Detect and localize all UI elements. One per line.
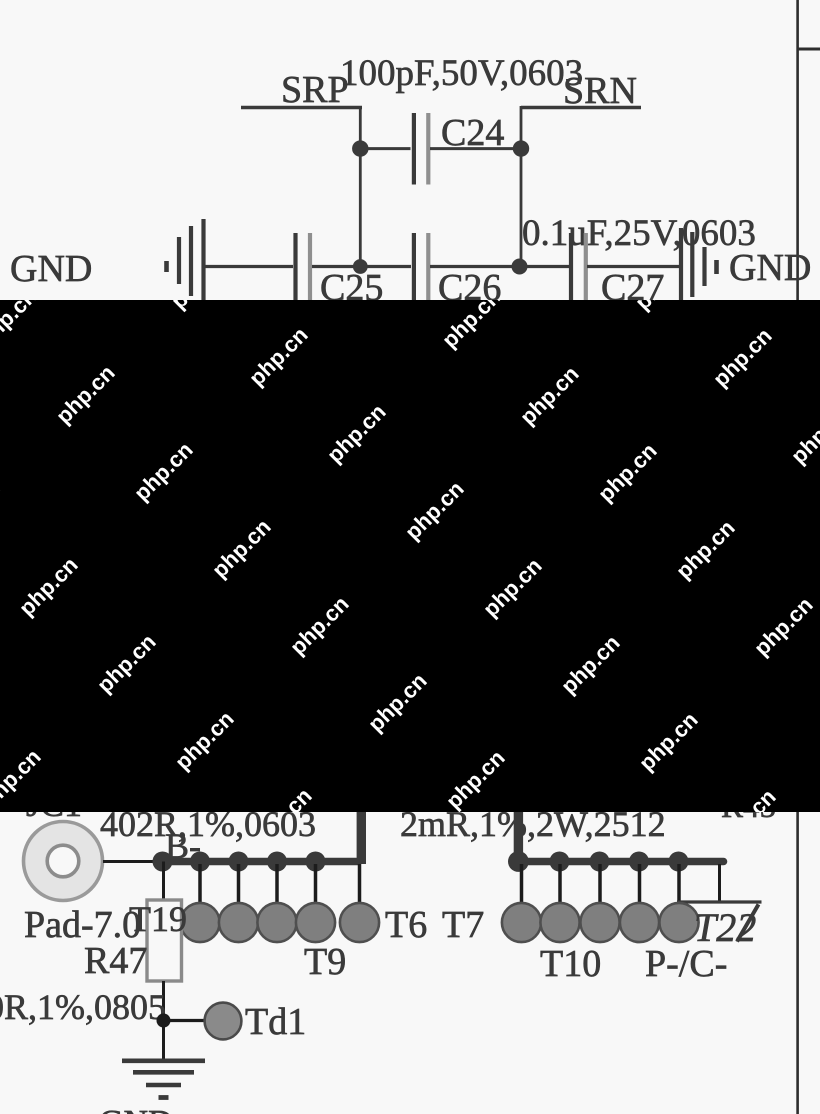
svg-text:T6: T6	[385, 904, 427, 946]
svg-text:0.1uF,25V,0603: 0.1uF,25V,0603	[522, 213, 756, 254]
svg-text:C24: C24	[441, 112, 504, 154]
svg-text:T10: T10	[540, 943, 601, 985]
svg-text:GND: GND	[10, 248, 92, 290]
svg-text:P-/C-: P-/C-	[645, 943, 727, 985]
svg-text:SRN: SRN	[563, 70, 637, 112]
svg-text:T9: T9	[304, 941, 346, 983]
svg-text:0R,1%,0805: 0R,1%,0805	[0, 987, 166, 1027]
svg-text:GND: GND	[729, 247, 811, 289]
svg-text:T7: T7	[442, 904, 484, 946]
svg-text:GND: GND	[99, 1104, 173, 1114]
svg-text:SRP: SRP	[281, 69, 349, 111]
svg-text:R47: R47	[84, 940, 147, 982]
svg-text:Td1: Td1	[245, 1001, 306, 1043]
svg-text:100pF,50V,0603: 100pF,50V,0603	[340, 53, 583, 94]
